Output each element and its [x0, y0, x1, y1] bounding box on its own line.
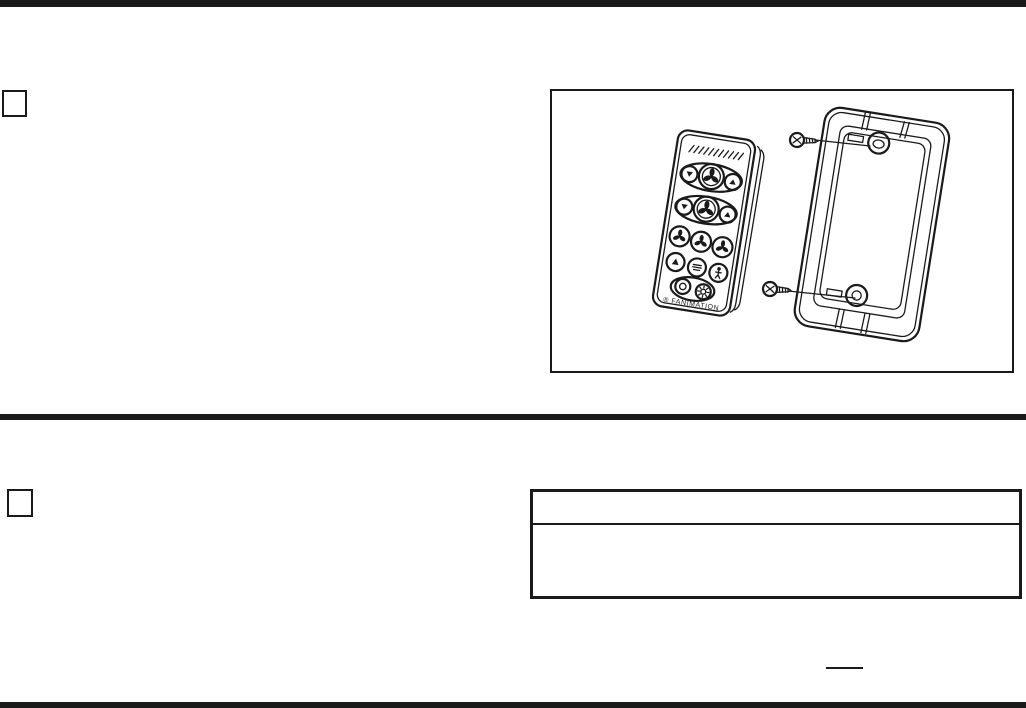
top-screw-hole [873, 139, 885, 149]
wall-plate-drawing [792, 105, 951, 343]
notes-table [530, 489, 1022, 599]
fill-in-blank-underline [826, 667, 863, 669]
mounting-screw-bottom-icon [763, 282, 792, 298]
notes-table-header [533, 492, 1019, 525]
top-rule-bar [0, 0, 1026, 7]
top-clip-tab [848, 134, 864, 142]
figure-illustration: ® FANIMATION [552, 91, 1012, 371]
section-divider-rule [0, 414, 1026, 420]
remote-button-cluster-2 [673, 192, 738, 228]
step-number-box-1 [2, 90, 27, 117]
bottom-screw-hole [851, 290, 862, 301]
adapter-bracket [819, 132, 926, 311]
manual-page: ® FANIMATION [0, 0, 1026, 708]
top-screw-boss [867, 131, 891, 155]
mounting-screw-top-icon [790, 133, 819, 148]
power-icon [674, 278, 691, 295]
remote-button-cluster-1 [678, 159, 743, 195]
wall-plate-outer-edge [792, 105, 951, 343]
figure-box: ® FANIMATION [550, 89, 1014, 373]
step-number-box-2 [7, 489, 33, 517]
remote-control-drawing: ® FANIMATION [652, 129, 767, 319]
bottom-rule-bar [0, 702, 1026, 708]
remote-vent-slits [689, 145, 743, 160]
light-icon [695, 283, 712, 300]
notes-table-body [533, 525, 1019, 596]
